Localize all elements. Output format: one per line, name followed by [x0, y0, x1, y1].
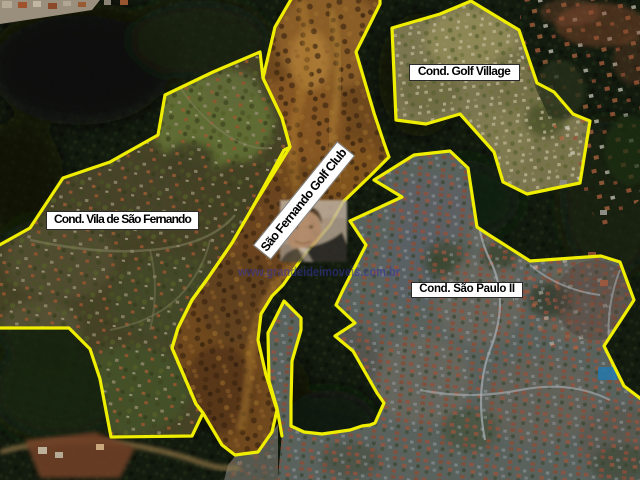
svg-text:www.grandeideimoveis.com.br: www.grandeideimoveis.com.br: [237, 265, 400, 279]
